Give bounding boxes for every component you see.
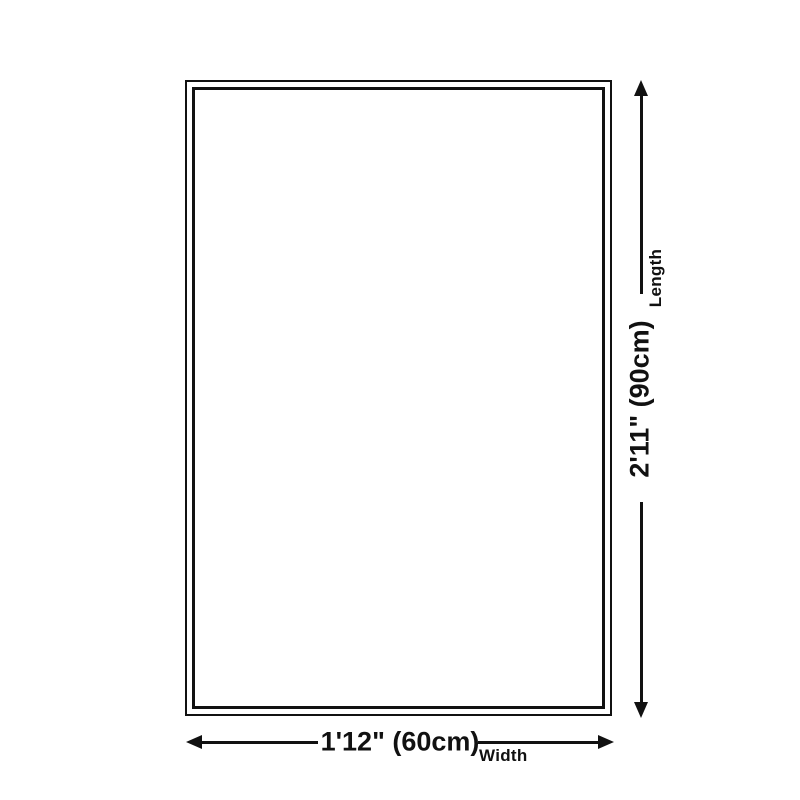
rug-size-diagram: Length 2'11" (90cm) 1'12" (60cm) Width xyxy=(0,0,800,800)
arrow-down-icon xyxy=(634,702,648,718)
arrow-left-icon xyxy=(186,735,202,749)
rug-outline-inner-border xyxy=(192,87,605,709)
rug-outline-outer-border xyxy=(185,80,612,716)
width-dimension-line-left xyxy=(201,741,318,744)
length-dimension-line-upper xyxy=(640,95,643,294)
width-axis-label: Width xyxy=(479,746,528,766)
arrow-up-icon xyxy=(634,80,648,96)
length-dimension-value: 2'11" (90cm) xyxy=(625,320,656,477)
length-axis-label: Length xyxy=(646,249,666,307)
width-dimension-line-right xyxy=(478,741,599,744)
length-dimension-line-lower xyxy=(640,502,643,703)
width-dimension-value: 1'12" (60cm) xyxy=(321,727,480,758)
arrow-right-icon xyxy=(598,735,614,749)
